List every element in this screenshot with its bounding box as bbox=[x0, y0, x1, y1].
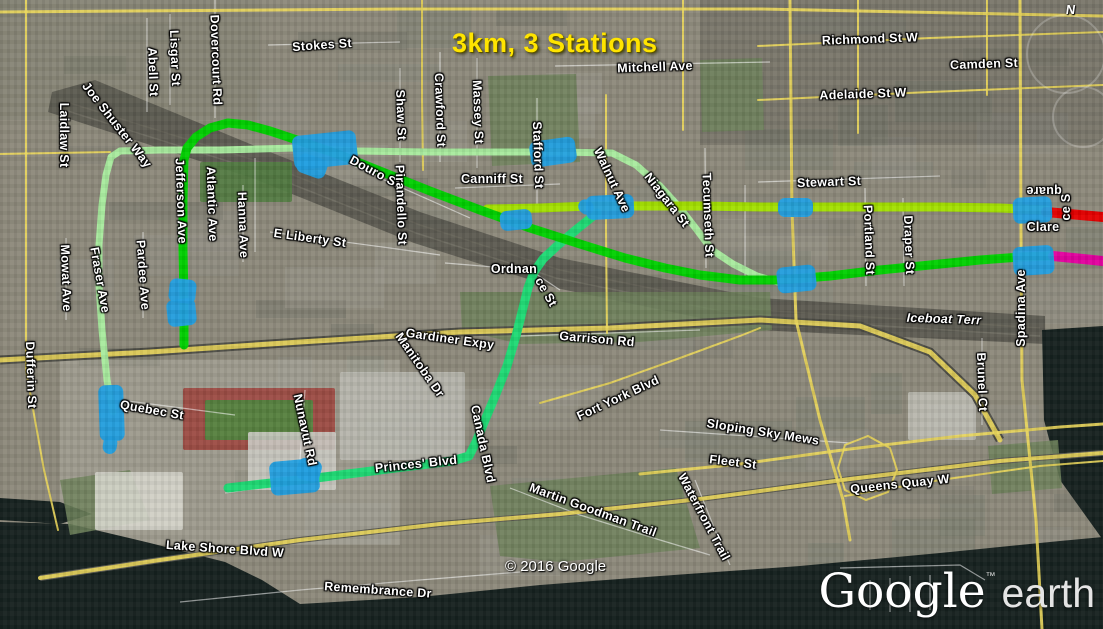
satellite-block bbox=[496, 8, 567, 26]
park-area bbox=[988, 440, 1062, 494]
station-marker[interactable] bbox=[1012, 196, 1052, 224]
park-area bbox=[700, 58, 764, 132]
route-red-east[interactable] bbox=[1046, 212, 1103, 217]
satellite-block bbox=[871, 373, 902, 414]
satellite-block bbox=[693, 340, 733, 358]
route-magenta-east[interactable] bbox=[1053, 256, 1103, 261]
satellite-block bbox=[420, 121, 467, 162]
google-earth-logo: Google™earth bbox=[818, 568, 1095, 615]
nav-ring-icon[interactable] bbox=[1026, 14, 1103, 94]
satellite-block bbox=[257, 89, 310, 130]
building-roof bbox=[340, 372, 465, 460]
station-marker[interactable] bbox=[776, 264, 818, 294]
logo-tm-mark: ™ bbox=[986, 571, 996, 582]
satellite-block bbox=[298, 32, 407, 50]
major-road bbox=[422, 0, 423, 170]
satellite-block bbox=[375, 243, 436, 284]
logo-earth-text: earth bbox=[1002, 570, 1095, 616]
station-marker[interactable] bbox=[778, 198, 813, 217]
map-canvas[interactable] bbox=[0, 0, 1103, 629]
google-earth-viewport[interactable]: Stokes StMitchell AveRichmond St WCamden… bbox=[0, 0, 1103, 629]
station-marker[interactable] bbox=[166, 298, 198, 328]
logo-google-text: Google bbox=[818, 564, 985, 619]
copyright-text: © 2016 Google bbox=[505, 558, 606, 575]
satellite-block bbox=[109, 202, 223, 220]
route-chartreuse-king[interactable] bbox=[487, 206, 1046, 210]
satellite-block bbox=[685, 421, 792, 462]
satellite-block bbox=[338, 64, 441, 82]
building-roof bbox=[95, 472, 183, 530]
building-roof bbox=[200, 162, 292, 202]
building-roof bbox=[908, 392, 976, 440]
satellite-block bbox=[56, 259, 114, 300]
satellite-block bbox=[951, 170, 986, 188]
satellite-block bbox=[744, 218, 855, 236]
annotation-title: 3km, 3 Stations bbox=[452, 28, 658, 59]
minor-road bbox=[455, 184, 560, 188]
station-marker[interactable] bbox=[1012, 245, 1055, 277]
station-marker[interactable] bbox=[499, 208, 533, 231]
satellite-block bbox=[882, 486, 974, 504]
satellite-block bbox=[285, 267, 384, 308]
station-marker[interactable] bbox=[98, 385, 125, 442]
